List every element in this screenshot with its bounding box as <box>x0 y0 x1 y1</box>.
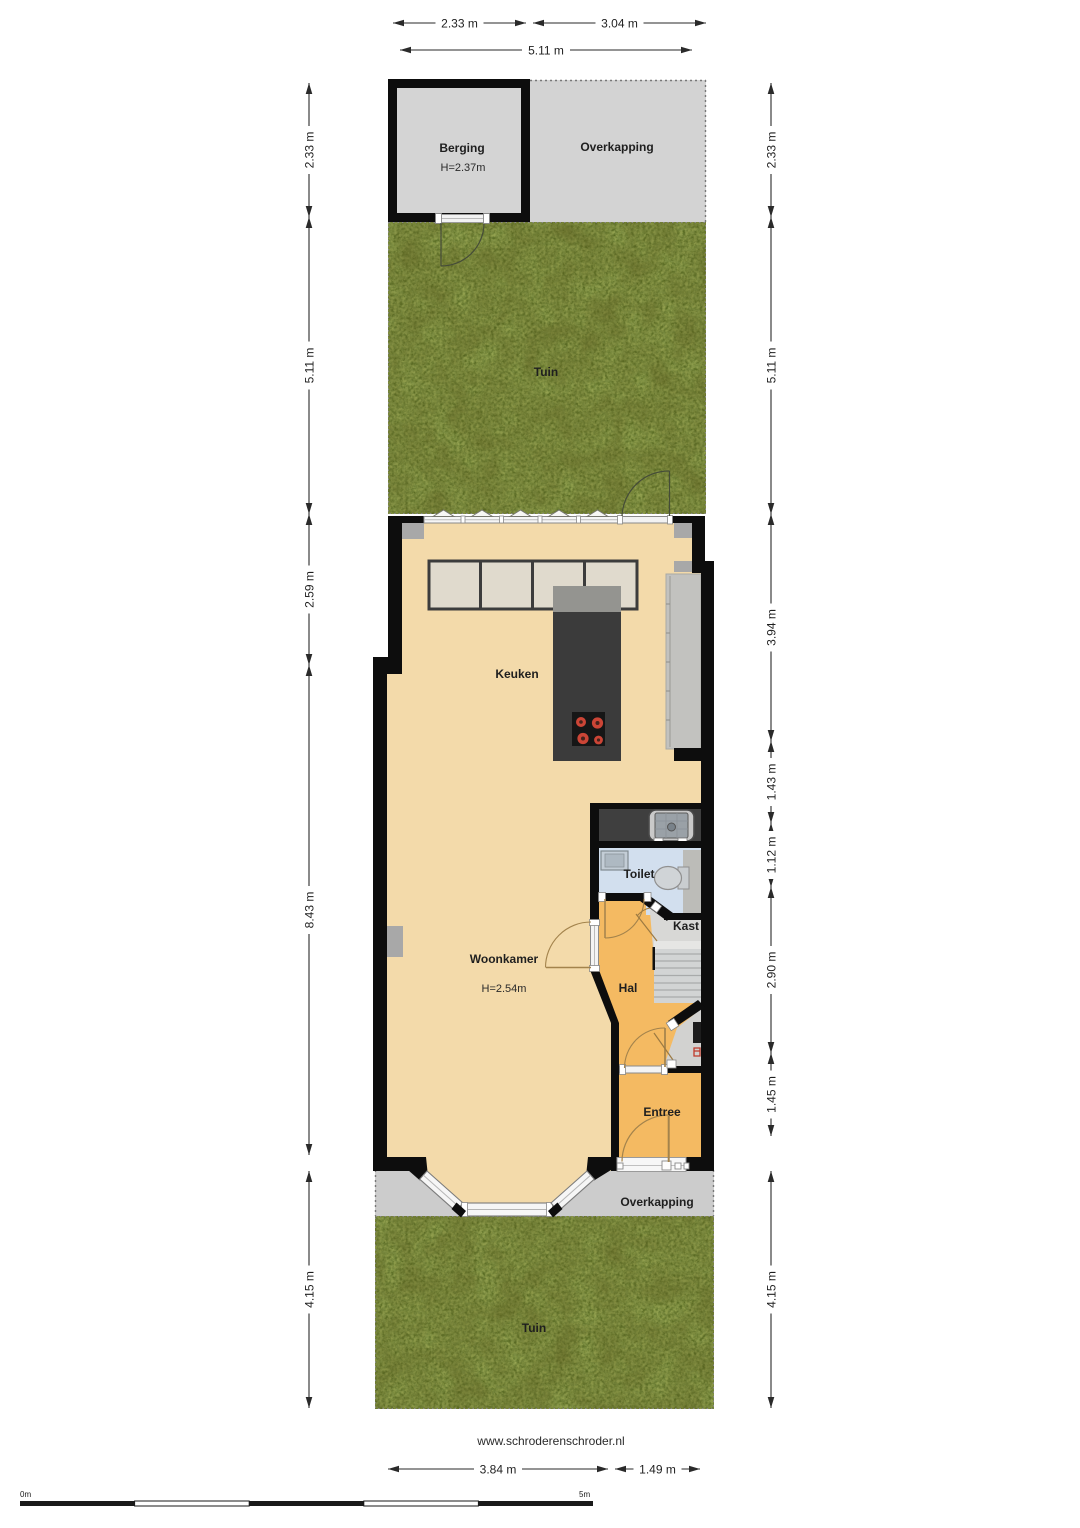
svg-text:Keuken: Keuken <box>495 667 538 681</box>
svg-text:www.schroderenschroder.nl: www.schroderenschroder.nl <box>476 1434 624 1448</box>
svg-text:H=2.37m: H=2.37m <box>441 162 486 174</box>
svg-text:4.15 m: 4.15 m <box>303 1271 317 1308</box>
svg-text:2.33 m: 2.33 m <box>303 132 317 169</box>
svg-text:2.59 m: 2.59 m <box>303 571 317 608</box>
svg-text:2.90 m: 2.90 m <box>765 952 779 989</box>
svg-text:Entree: Entree <box>643 1105 681 1119</box>
svg-text:2.33 m: 2.33 m <box>441 17 478 31</box>
svg-text:3.94 m: 3.94 m <box>765 609 779 646</box>
svg-text:Overkapping: Overkapping <box>580 140 653 154</box>
svg-text:Woonkamer: Woonkamer <box>470 952 539 966</box>
svg-text:0m: 0m <box>20 1490 31 1499</box>
svg-text:8.43 m: 8.43 m <box>303 892 317 929</box>
svg-text:Hal: Hal <box>619 981 638 995</box>
svg-text:5.11 m: 5.11 m <box>765 348 779 384</box>
svg-text:Tuin: Tuin <box>522 1321 546 1335</box>
svg-text:4.15 m: 4.15 m <box>765 1271 779 1308</box>
svg-text:1.45 m: 1.45 m <box>765 1076 779 1113</box>
svg-text:5.11 m: 5.11 m <box>528 44 564 58</box>
svg-text:1.43 m: 1.43 m <box>765 764 779 801</box>
svg-text:Tuin: Tuin <box>534 365 558 379</box>
svg-text:5m: 5m <box>579 1490 590 1499</box>
svg-text:1.49 m: 1.49 m <box>639 1463 676 1477</box>
svg-text:3.84 m: 3.84 m <box>480 1463 517 1477</box>
svg-text:H=2.54m: H=2.54m <box>482 983 527 995</box>
svg-text:Kast: Kast <box>673 919 699 933</box>
svg-text:3.04 m: 3.04 m <box>601 17 638 31</box>
svg-text:Toilet: Toilet <box>623 867 654 881</box>
svg-text:2.33 m: 2.33 m <box>765 132 779 169</box>
svg-text:Berging: Berging <box>439 141 484 155</box>
svg-text:1.12 m: 1.12 m <box>765 837 779 874</box>
svg-text:Overkapping: Overkapping <box>620 1195 693 1209</box>
svg-text:5.11 m: 5.11 m <box>303 348 317 384</box>
